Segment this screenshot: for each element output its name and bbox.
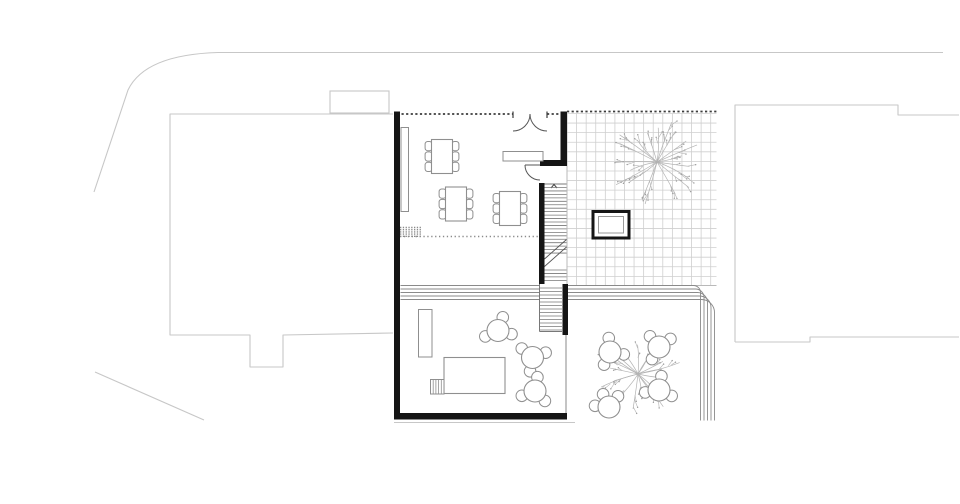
terrace-table (444, 358, 505, 394)
interior-door (525, 165, 540, 180)
road-line (94, 53, 943, 193)
road-line (95, 372, 204, 420)
neighbor-building-left (170, 91, 393, 367)
round-table (598, 332, 629, 370)
round-table (516, 371, 551, 406)
counter (503, 152, 543, 162)
round-table (516, 343, 551, 377)
dining-table (493, 192, 527, 226)
hatched-step (431, 380, 445, 395)
dining-table (439, 187, 473, 221)
round-table (639, 370, 677, 401)
floor-plan-drawing (0, 0, 960, 504)
wall-segment (561, 112, 568, 167)
dot-hatch (400, 228, 539, 237)
dining-table (425, 140, 459, 174)
wall-segment (539, 183, 545, 284)
round-table (480, 312, 518, 343)
wall-segment (563, 284, 569, 335)
wall-segment (394, 413, 567, 420)
wall-segment (540, 160, 567, 166)
wall-segment (394, 112, 400, 420)
entrance-double-door (513, 114, 547, 131)
bench (401, 128, 409, 212)
round-table (589, 389, 624, 418)
floor-plan-page (0, 0, 960, 504)
neighbor-building-right (735, 105, 959, 342)
planter (419, 310, 433, 358)
glass-facade (402, 112, 717, 119)
tile-grid-courtyard (567, 114, 717, 286)
skylight (593, 212, 629, 239)
